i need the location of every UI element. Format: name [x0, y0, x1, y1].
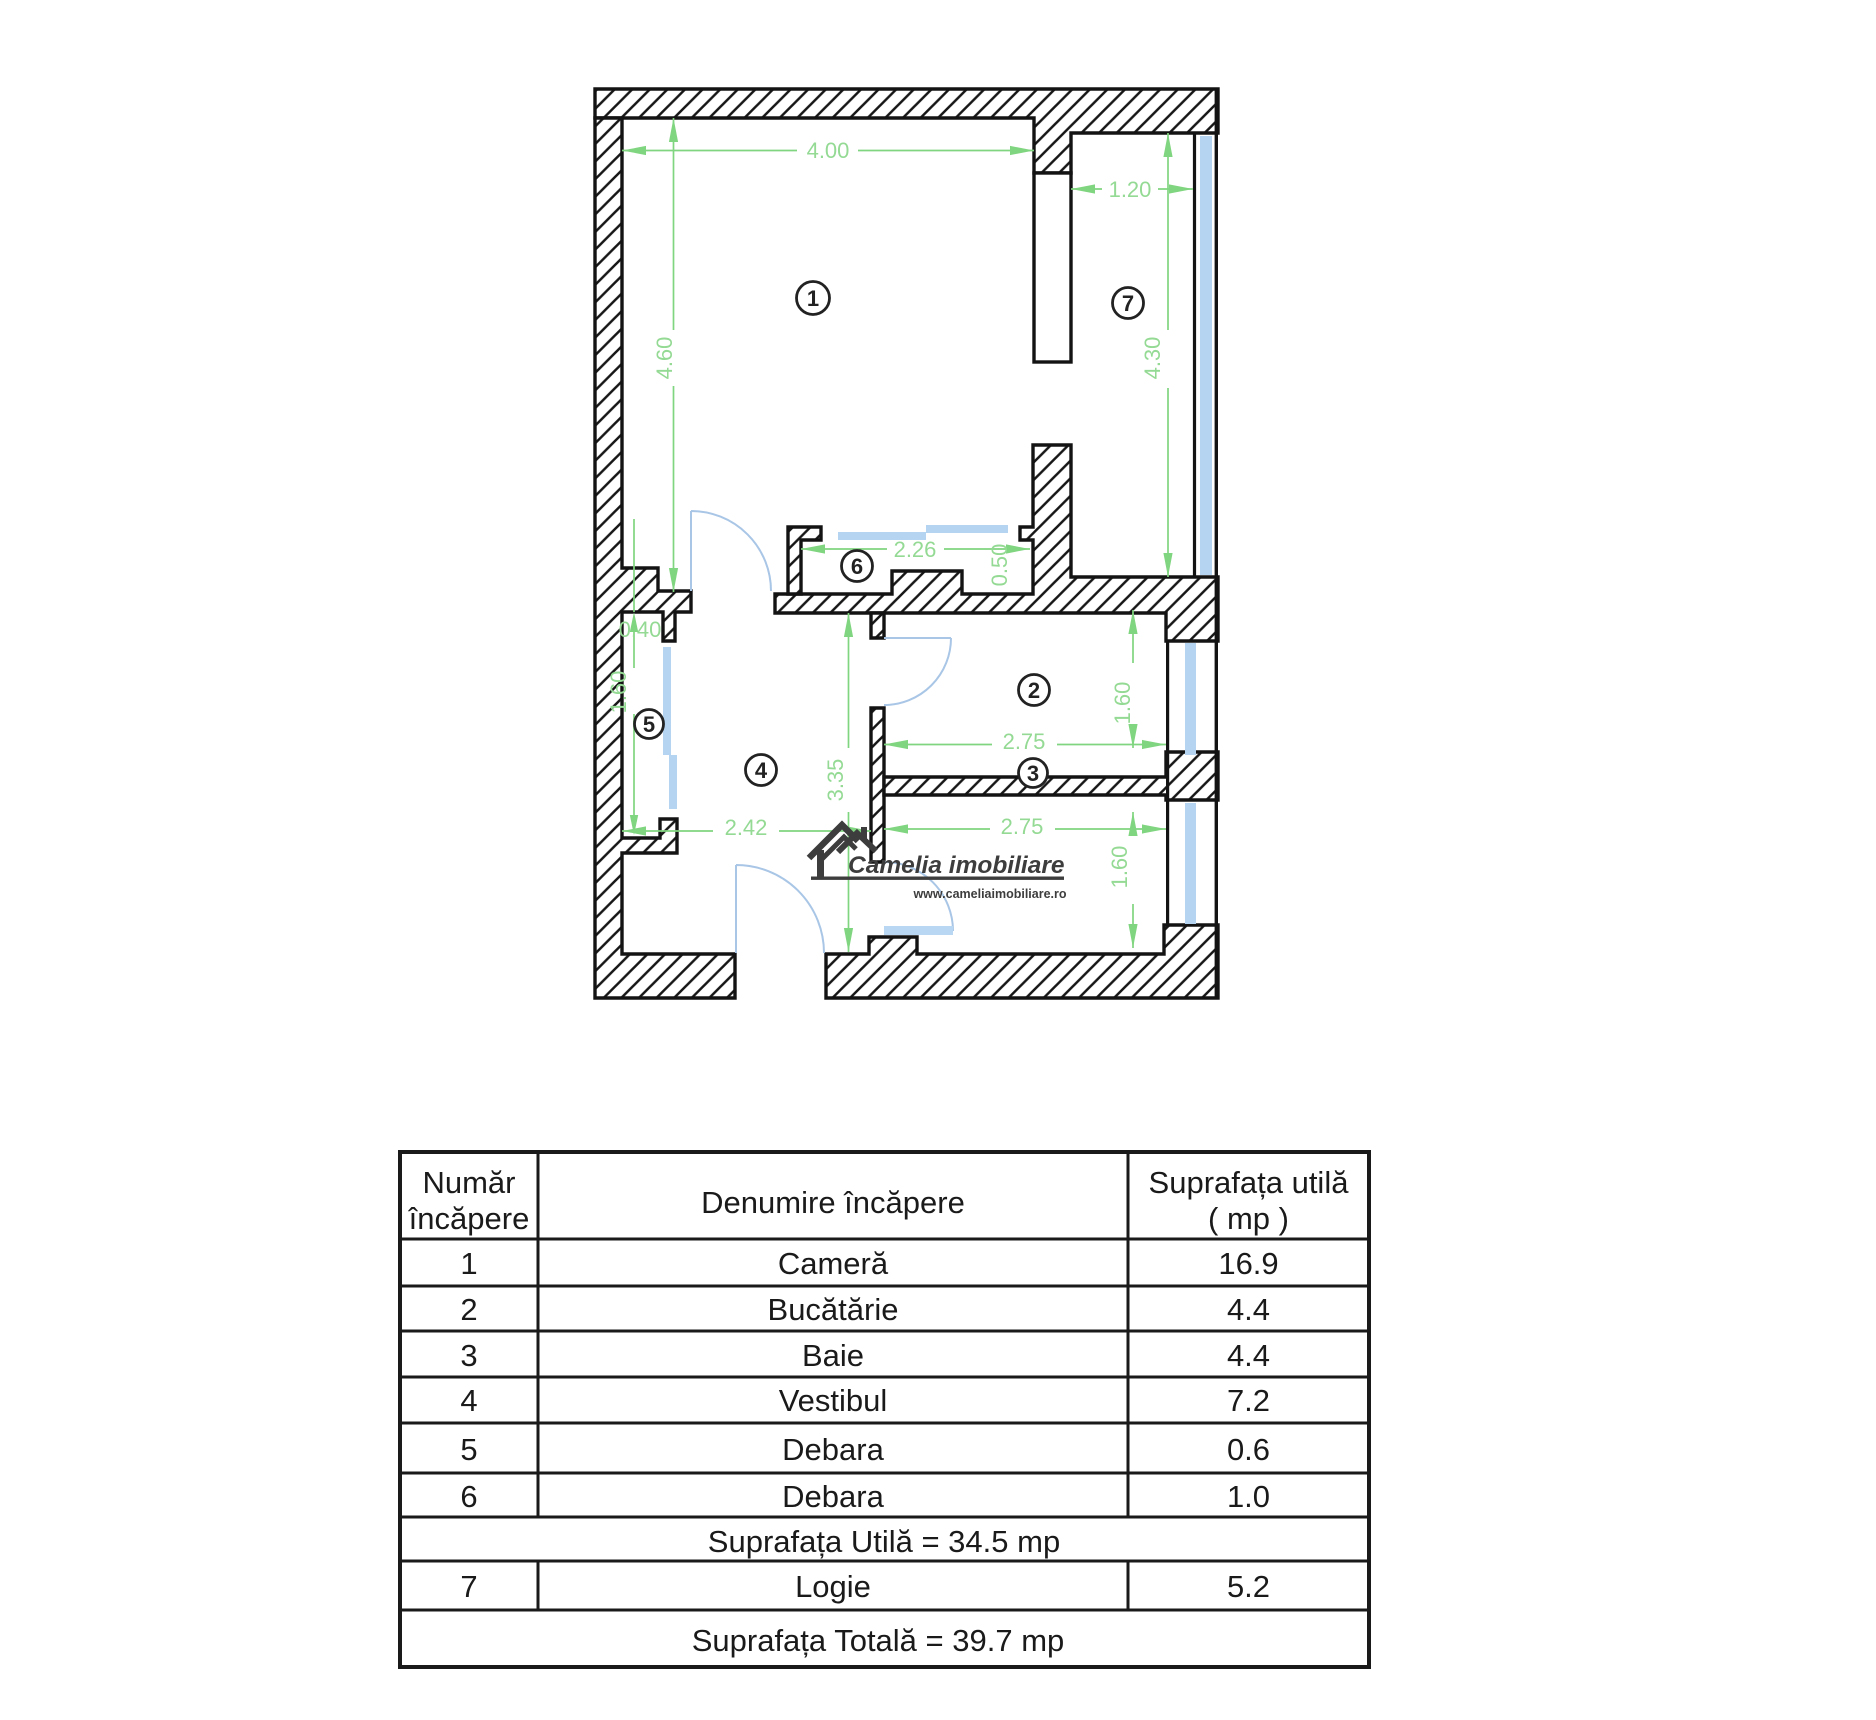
svg-text:2.75: 2.75 [1001, 814, 1044, 839]
svg-text:5: 5 [460, 1432, 477, 1467]
svg-text:Număr: Număr [422, 1165, 515, 1200]
svg-text:2: 2 [1028, 678, 1040, 703]
svg-text:Logie: Logie [795, 1569, 871, 1604]
svg-text:3.35: 3.35 [823, 759, 848, 802]
svg-text:4: 4 [755, 758, 768, 783]
svg-text:2: 2 [460, 1292, 477, 1327]
svg-text:0.6: 0.6 [1227, 1432, 1270, 1467]
svg-text:4: 4 [460, 1383, 477, 1418]
svg-text:Denumire încăpere: Denumire încăpere [701, 1185, 965, 1220]
svg-text:3: 3 [460, 1338, 477, 1373]
svg-text:( mp ): ( mp ) [1208, 1201, 1289, 1236]
svg-text:Suprafața Totală = 39.7 mp: Suprafața Totală = 39.7 mp [692, 1623, 1065, 1658]
svg-text:Suprafața Utilă = 34.5 mp: Suprafața Utilă = 34.5 mp [708, 1524, 1060, 1559]
svg-text:Vestibul: Vestibul [779, 1383, 888, 1418]
svg-text:5.2: 5.2 [1227, 1569, 1270, 1604]
svg-text:6: 6 [851, 554, 863, 579]
svg-text:1: 1 [460, 1246, 477, 1281]
svg-text:4.00: 4.00 [807, 138, 850, 163]
svg-text:5: 5 [643, 712, 655, 737]
svg-text:2.26: 2.26 [894, 537, 937, 562]
svg-text:6: 6 [460, 1479, 477, 1514]
svg-text:0.40: 0.40 [619, 617, 662, 642]
svg-text:1.20: 1.20 [1109, 177, 1152, 202]
svg-text:0.50: 0.50 [987, 544, 1012, 587]
svg-text:Baie: Baie [802, 1338, 864, 1373]
svg-text:1.60: 1.60 [606, 671, 631, 714]
svg-text:1: 1 [807, 286, 819, 311]
svg-text:16.9: 16.9 [1218, 1246, 1278, 1281]
svg-text:1.60: 1.60 [1110, 682, 1135, 725]
svg-text:1.0: 1.0 [1227, 1479, 1270, 1514]
svg-text:Bucătărie: Bucătărie [768, 1292, 899, 1327]
svg-text:4.4: 4.4 [1227, 1338, 1270, 1373]
svg-text:1.60: 1.60 [1107, 846, 1132, 889]
svg-text:2.42: 2.42 [725, 815, 768, 840]
svg-text:încăpere: încăpere [408, 1201, 530, 1236]
svg-text:7: 7 [1122, 291, 1134, 316]
svg-text:Camelia imobiliare: Camelia imobiliare [848, 852, 1065, 879]
svg-text:Debara: Debara [782, 1479, 884, 1514]
svg-text:3: 3 [1027, 761, 1039, 786]
svg-text:2.75: 2.75 [1003, 729, 1046, 754]
svg-text:Suprafața utilă: Suprafața utilă [1149, 1165, 1350, 1200]
svg-text:Debara: Debara [782, 1432, 884, 1467]
svg-text:4.30: 4.30 [1140, 337, 1165, 380]
svg-text:7: 7 [460, 1569, 477, 1604]
svg-text:7.2: 7.2 [1227, 1383, 1270, 1418]
svg-text:4.4: 4.4 [1227, 1292, 1270, 1327]
svg-text:www.cameliaimobiliare.ro: www.cameliaimobiliare.ro [912, 887, 1066, 901]
svg-text:4.60: 4.60 [652, 337, 677, 380]
svg-text:Cameră: Cameră [778, 1246, 889, 1281]
